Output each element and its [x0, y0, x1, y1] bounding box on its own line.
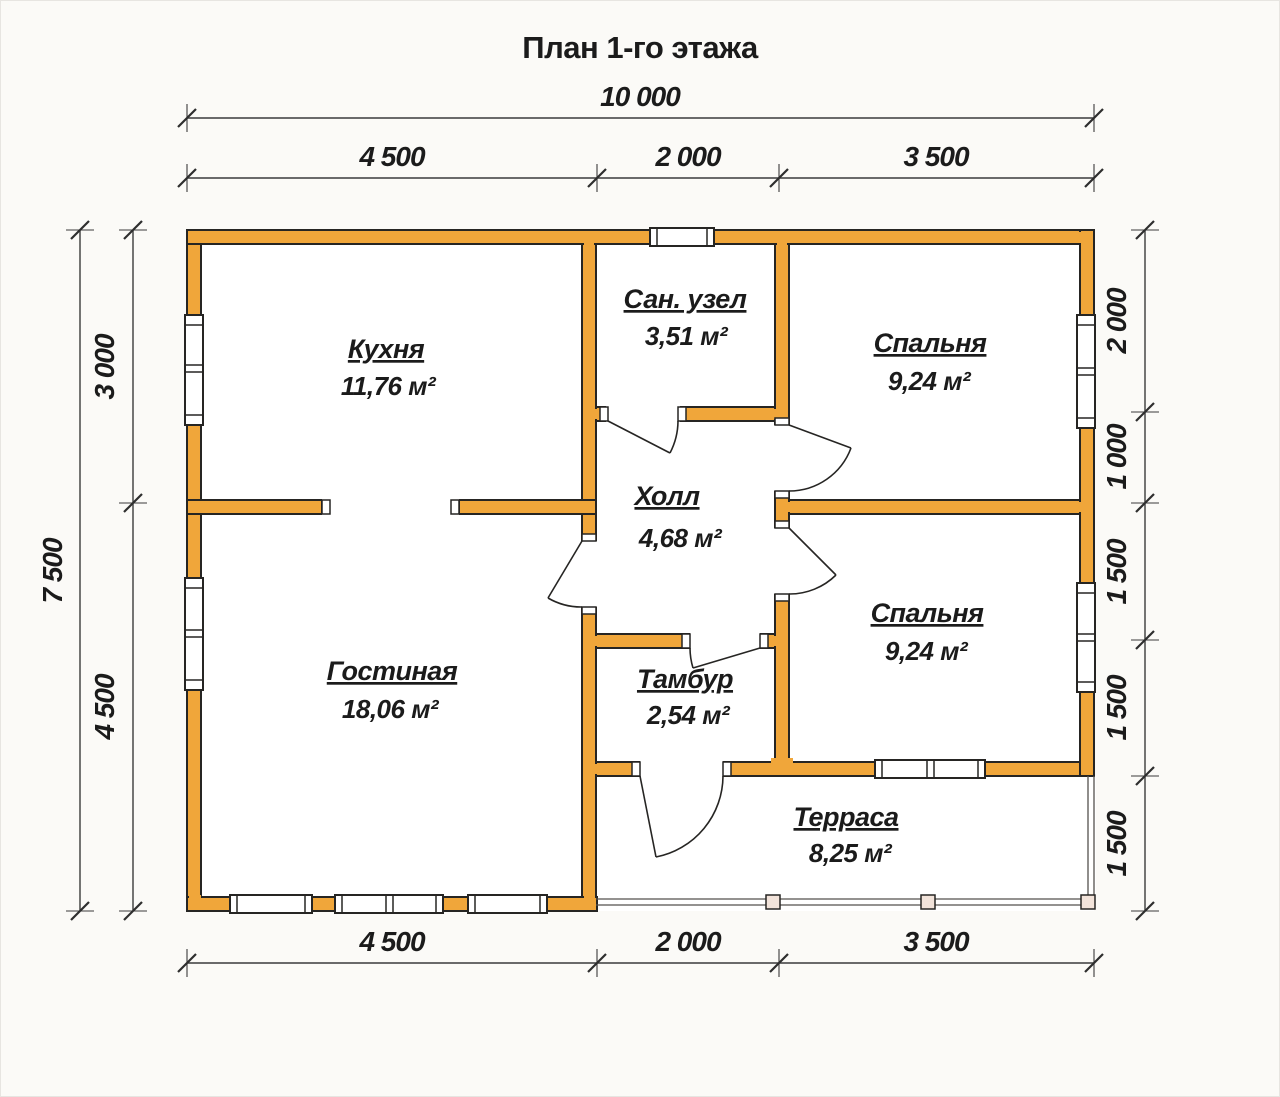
terrace-post-1 [766, 895, 780, 909]
room-bathroom-area: 3,51 м² [645, 321, 729, 351]
page-title: План 1-го этажа [522, 30, 759, 65]
wall-exterior-top [187, 230, 1094, 244]
dim-right-seg-3: 1 500 [1101, 538, 1132, 604]
living-door-jamb-top [582, 534, 596, 541]
bedroom1-door-jamb-bottom [775, 491, 789, 498]
room-hall-name: Холл [632, 481, 700, 511]
dim-left-seg-1: 3 000 [89, 333, 120, 399]
opening-kitchen-living-jamb-left [322, 500, 330, 514]
vestibule-door-jamb-right [760, 634, 768, 648]
bedroom1-window [1077, 315, 1095, 428]
room-bedroom2-name: Спальня [871, 598, 984, 628]
bedroom1-door-jamb-top [775, 418, 789, 425]
room-vestibule-area: 2,54 м² [646, 700, 731, 730]
dim-left-total: 7 500 [37, 537, 68, 603]
wall-kitchen-living-left [187, 500, 322, 514]
dim-top-seg-1: 4 500 [358, 141, 425, 172]
living-window-bottom-2 [335, 895, 443, 913]
opening-kitchen-living-jamb-right [451, 500, 459, 514]
room-kitchen-area: 11,76 м² [341, 371, 437, 401]
room-bedroom2-area: 9,24 м² [885, 636, 969, 666]
entrance-door-jamb-left [632, 762, 640, 776]
living-window-bottom-3 [468, 895, 547, 913]
dim-right-seg-4: 1 500 [1101, 674, 1132, 740]
kitchen-window [185, 315, 203, 425]
room-kitchen-name: Кухня [348, 334, 425, 364]
living-window-bottom-1 [230, 895, 312, 913]
floor-plan-svg: План 1-го этажа [0, 0, 1280, 1097]
room-living-name: Гостиная [327, 656, 458, 686]
terrace-post-3 [1081, 895, 1095, 909]
room-terrace-area: 8,25 м² [809, 838, 893, 868]
bedroom2-terrace-window [875, 760, 985, 778]
terrace-post-2 [921, 895, 935, 909]
room-hall-area: 4,68 м² [638, 523, 723, 553]
living-door-jamb-bottom [582, 607, 596, 614]
wall-bedroom-divider [789, 500, 1080, 514]
dim-top-total: 10 000 [600, 81, 681, 112]
room-bathroom-name: Сан. узел [624, 284, 748, 314]
bathroom-door-jamb-left [600, 407, 608, 421]
room-bedroom1-area: 9,24 м² [888, 366, 972, 396]
dim-right-seg-2: 1 000 [1101, 423, 1132, 489]
dim-bottom-seg-2: 2 000 [654, 926, 721, 957]
floor-plan-page: План 1-го этажа [0, 0, 1280, 1097]
bathroom-window-top [650, 228, 714, 246]
room-vestibule-name: Тамбур [637, 664, 733, 694]
living-window-left [185, 578, 203, 690]
bedroom2-window [1077, 583, 1095, 692]
dim-bottom-seg-1: 4 500 [358, 926, 425, 957]
wall-kitchen-living-right [459, 500, 596, 514]
dim-top-seg-3: 3 500 [903, 141, 969, 172]
bedroom2-door-jamb-bottom [775, 594, 789, 601]
room-terrace-name: Терраса [793, 802, 898, 832]
vestibule-door-jamb-left [682, 634, 690, 648]
room-living-area: 18,06 м² [342, 694, 440, 724]
entrance-door-jamb-right [723, 762, 731, 776]
bedroom2-door-jamb-top [775, 521, 789, 528]
room-bedroom1-name: Спальня [874, 328, 987, 358]
dim-left-seg-2: 4 500 [89, 673, 120, 740]
dim-right-seg-1: 2 000 [1101, 287, 1132, 354]
dim-top-seg-2: 2 000 [654, 141, 721, 172]
dim-bottom-seg-3: 3 500 [903, 926, 969, 957]
bathroom-door-jamb-right [678, 407, 686, 421]
dim-right-seg-5: 1 500 [1101, 810, 1132, 876]
